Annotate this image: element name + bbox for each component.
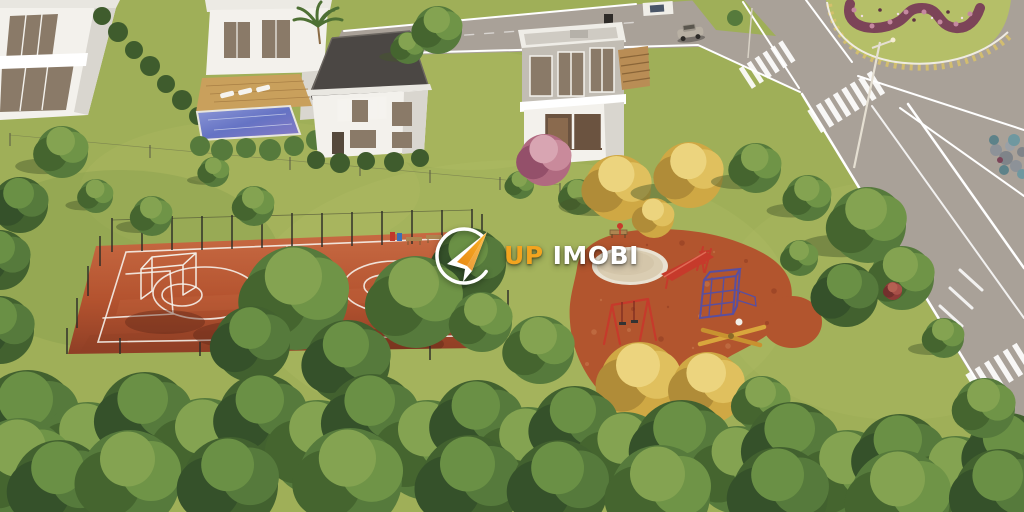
trash-bin-blue: [397, 233, 402, 241]
brand-icon: [431, 222, 497, 288]
solar-panel: [650, 5, 664, 13]
ball: [736, 319, 743, 326]
brand-text: UPIMOBI: [504, 241, 639, 270]
watermark-logo: UPIMOBI: [431, 222, 639, 288]
trash-bin-red: [390, 232, 395, 241]
skylight: [570, 30, 588, 38]
wood-deck: [196, 74, 312, 112]
house-1-window-upper: [6, 14, 58, 60]
swimming-pool: [197, 106, 300, 140]
condo-aerial-render: UPIMOBI: [0, 0, 1024, 512]
brand-word-imobi: IMOBI: [553, 241, 639, 270]
house-across-street: [643, 1, 674, 16]
bench: [406, 237, 422, 241]
pergola: [618, 46, 650, 90]
house-1-window-lower: [0, 63, 74, 112]
brand-word-up: UP: [504, 241, 544, 270]
